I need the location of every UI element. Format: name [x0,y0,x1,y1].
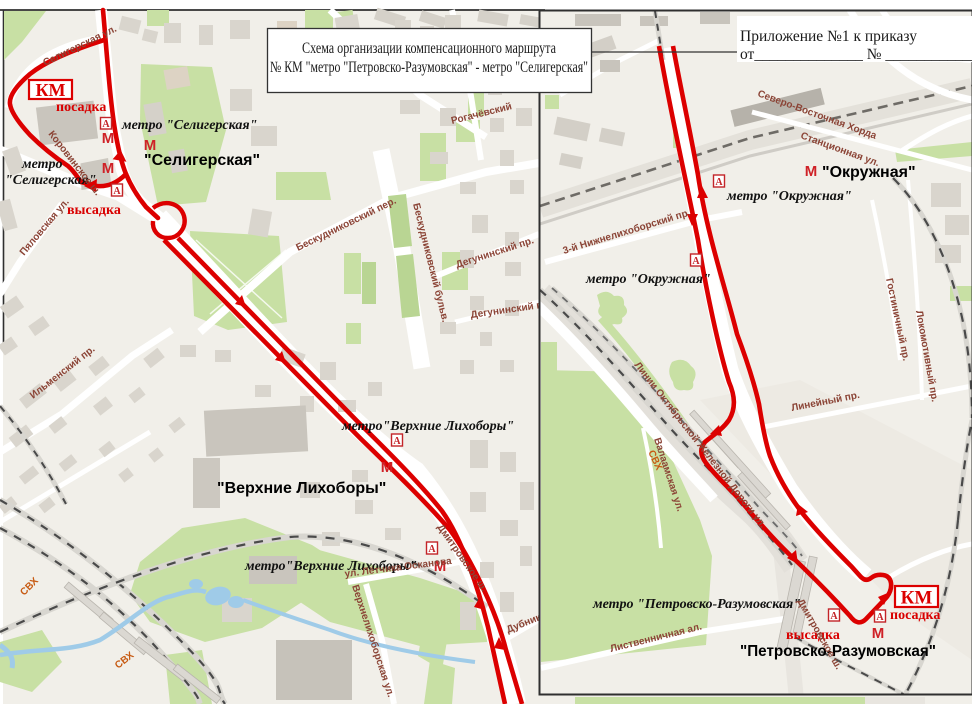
svg-text:М: М [805,163,818,180]
svg-text:А: А [393,436,401,447]
svg-text:М: М [381,459,394,476]
svg-text:М: М [872,625,885,642]
svg-text:"Селигерская": "Селигерская" [144,152,260,169]
svg-text:метро "Селигерская": метро "Селигерская" [121,118,257,133]
svg-text:метро"Верхние Лихоборы": метро"Верхние Лихоборы" [341,419,514,434]
svg-text:М: М [102,160,115,177]
svg-text:Схема организации компенсацион: Схема организации компенсационного маршр… [302,40,556,57]
svg-text:КМ: КМ [901,588,933,609]
svg-text:М: М [102,130,115,147]
svg-text:метро "Окружная": метро "Окружная" [726,189,852,204]
svg-text:№ КМ "метро "Петровско-Разумов: № КМ "метро "Петровско-Разумовская" - ме… [270,59,588,76]
svg-text:А: А [830,611,838,622]
svg-text:посадка: посадка [56,100,106,115]
svg-text:метро "Окружная": метро "Окружная" [585,272,711,287]
svg-text:высадка: высадка [67,203,121,218]
svg-text:А: А [876,612,884,623]
svg-text:КМ: КМ [35,80,65,100]
svg-text:посадка: посадка [890,608,940,623]
svg-text:А: А [692,256,700,267]
svg-text:Приложение №1 к приказу: Приложение №1 к приказу [740,28,917,45]
svg-text:"Окружная": "Окружная" [822,164,916,181]
svg-text:"Верхние Лихоборы": "Верхние Лихоборы" [217,480,386,497]
svg-text:метро: метро [21,157,63,172]
svg-text:метро "Петровско-Разумовская": метро "Петровско-Разумовская" [592,597,801,612]
svg-text:А: А [715,177,723,188]
svg-text:от______________ № __________: от______________ № _____________ [740,46,972,63]
svg-text:А: А [428,544,436,555]
svg-text:А: А [102,119,110,130]
svg-text:А: А [113,186,121,197]
